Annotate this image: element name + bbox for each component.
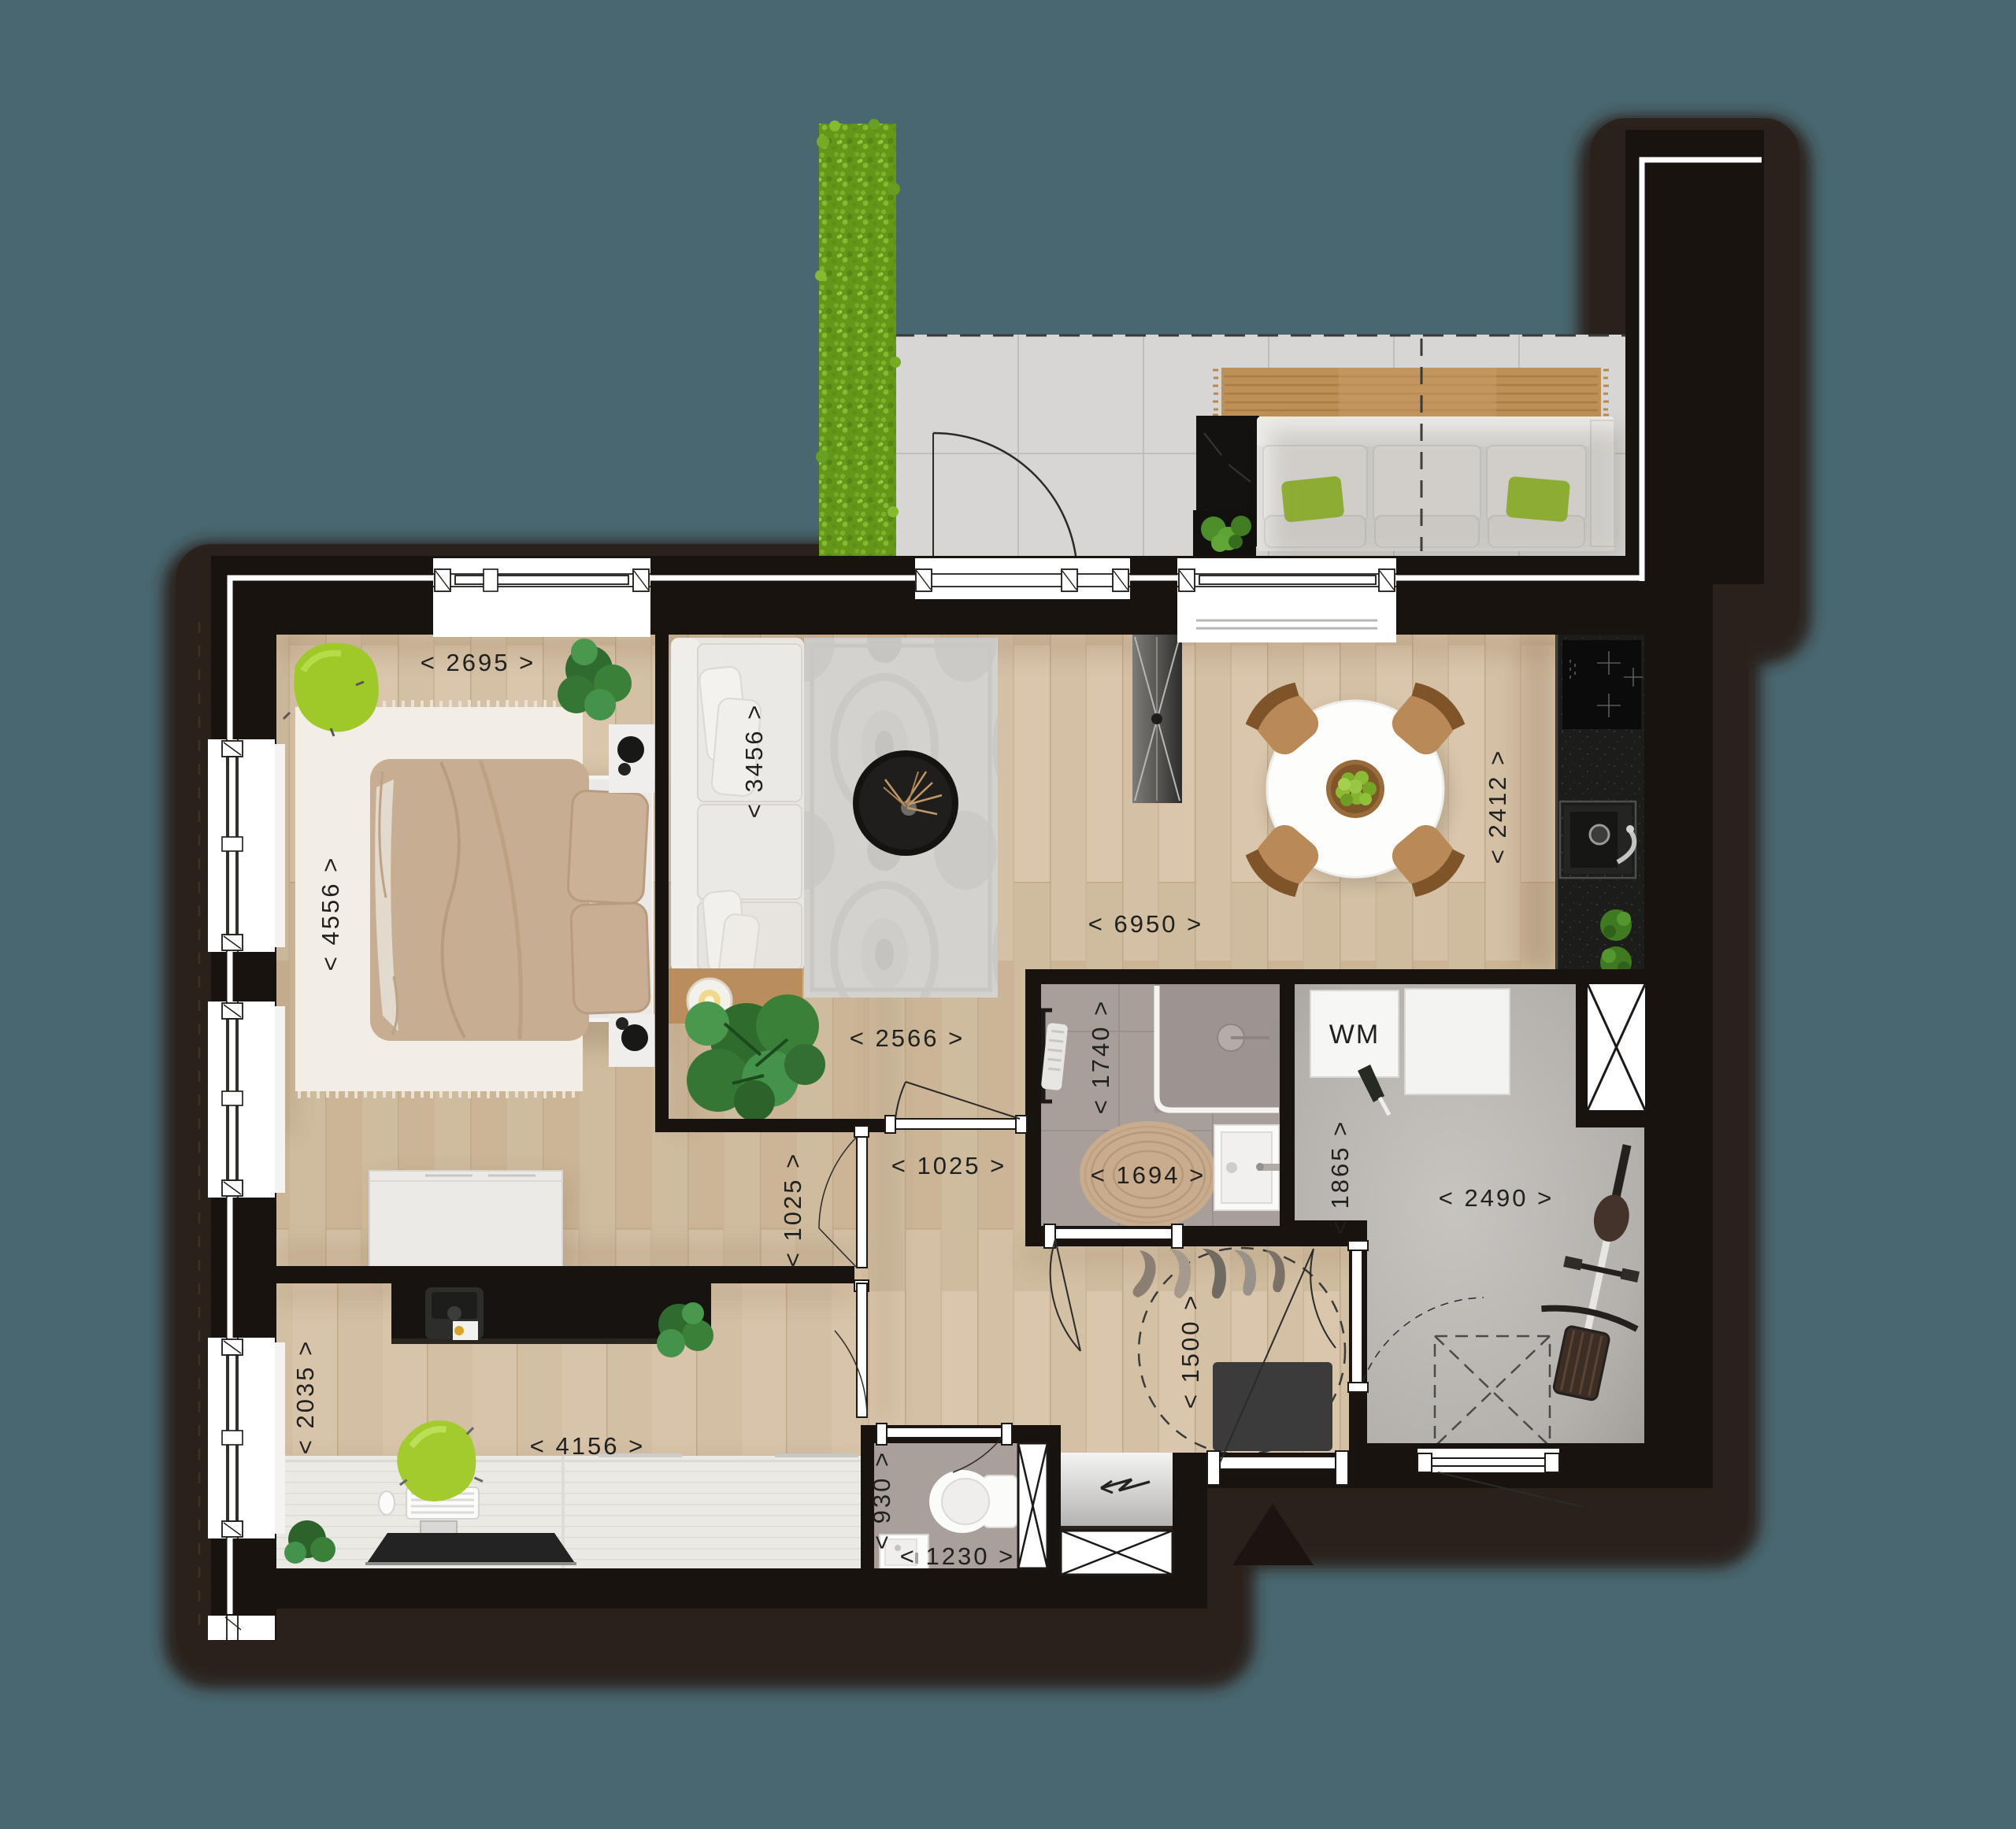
svg-text:WM: WM	[1329, 1020, 1380, 1050]
svg-text:< 2695 >: < 2695 >	[421, 649, 535, 676]
svg-text:< 4556 >: < 4556 >	[317, 856, 344, 971]
svg-text:< 2035 >: < 2035 >	[291, 1339, 319, 1454]
svg-text:< 1694 >: < 1694 >	[1091, 1161, 1206, 1189]
svg-text:< 1025 >: < 1025 >	[891, 1152, 1006, 1179]
svg-text:< 1740 >: < 1740 >	[1087, 999, 1114, 1114]
svg-text:< 1025 >: < 1025 >	[779, 1152, 806, 1267]
svg-text:< 4156 >: < 4156 >	[530, 1432, 645, 1460]
svg-text:< 2490 >: < 2490 >	[1439, 1184, 1554, 1212]
svg-text:< 2412 >: < 2412 >	[1484, 749, 1511, 864]
svg-text:< 1230 >: < 1230 >	[900, 1542, 1015, 1570]
svg-text:< 1500 >: < 1500 >	[1177, 1294, 1204, 1409]
svg-text:< 930 >: < 930 >	[868, 1450, 895, 1549]
svg-text:< 1865 >: < 1865 >	[1326, 1120, 1354, 1235]
svg-text:< 2566 >: < 2566 >	[850, 1024, 965, 1052]
svg-text:< 6950 >: < 6950 >	[1088, 910, 1203, 938]
svg-text:< 3456 >: < 3456 >	[740, 703, 768, 818]
